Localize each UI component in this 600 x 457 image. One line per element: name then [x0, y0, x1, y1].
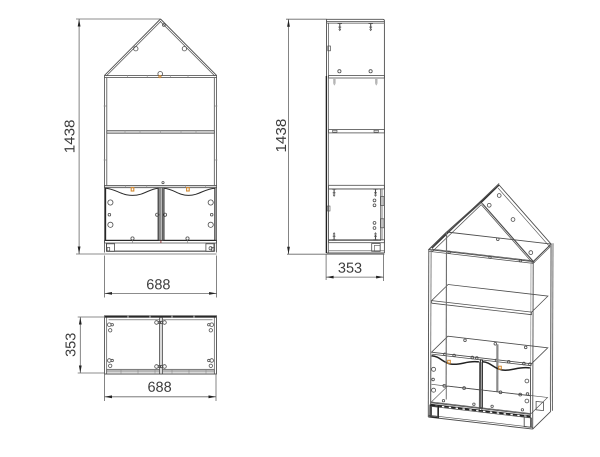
svg-text:688: 688	[146, 277, 170, 293]
svg-text:1438: 1438	[273, 119, 290, 153]
svg-text:353: 353	[338, 261, 362, 277]
svg-text:1438: 1438	[61, 120, 78, 154]
svg-text:353: 353	[64, 333, 80, 357]
svg-text:688: 688	[147, 380, 171, 396]
